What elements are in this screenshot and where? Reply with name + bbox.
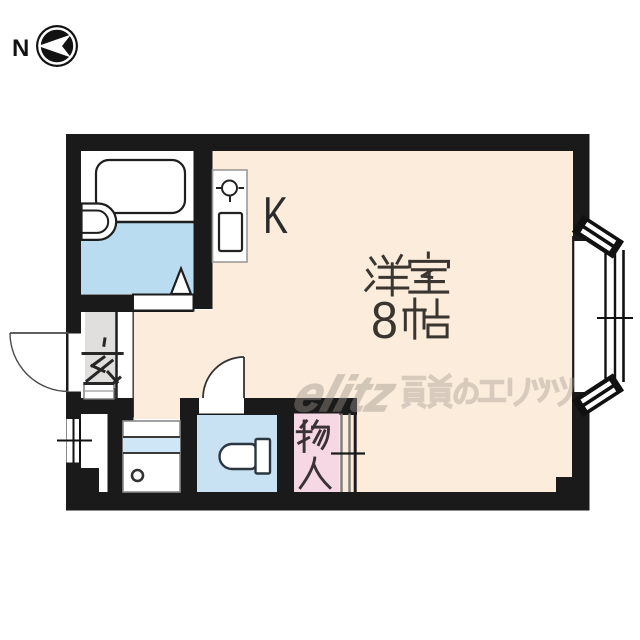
svg-text:elitz: elitz (288, 366, 403, 422)
svg-text:K: K (263, 186, 288, 245)
svg-text:N: N (12, 35, 29, 62)
svg-text:8: 8 (371, 291, 398, 349)
